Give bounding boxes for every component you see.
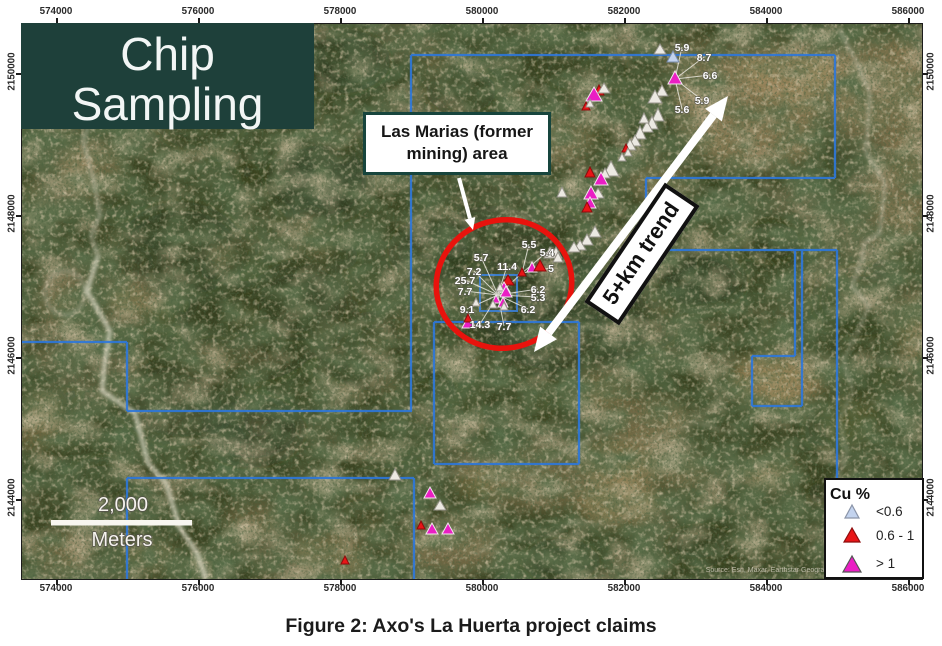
svg-text:<0.6: <0.6: [876, 504, 903, 519]
svg-text:7.7: 7.7: [497, 321, 512, 333]
svg-text:5.9: 5.9: [695, 95, 710, 107]
svg-text:5.4: 5.4: [540, 247, 555, 259]
svg-text:5.5: 5.5: [522, 239, 537, 251]
svg-text:> 1: > 1: [876, 556, 895, 571]
svg-text:8.7: 8.7: [697, 52, 712, 64]
svg-text:14.3: 14.3: [470, 319, 491, 331]
svg-text:5.3: 5.3: [531, 292, 546, 304]
svg-text:6.6: 6.6: [703, 70, 718, 82]
svg-text:5.7: 5.7: [474, 252, 489, 264]
svg-text:0.6 - 1: 0.6 - 1: [876, 528, 914, 543]
svg-text:2,000: 2,000: [98, 494, 148, 516]
svg-text:Meters: Meters: [91, 529, 152, 551]
svg-text:11.4: 11.4: [497, 261, 517, 273]
svg-text:6.2: 6.2: [521, 304, 536, 316]
svg-text:5.9: 5.9: [675, 42, 690, 54]
svg-text:5.6: 5.6: [675, 104, 690, 116]
svg-text:Cu %: Cu %: [830, 486, 870, 503]
svg-text:Source: Esri, Maxar, Earthstar: Source: Esri, Maxar, Earthstar Geograp: [706, 567, 829, 574]
svg-text:7.7: 7.7: [458, 286, 473, 298]
svg-text:9.1: 9.1: [460, 304, 475, 316]
svg-text:5: 5: [548, 263, 554, 275]
